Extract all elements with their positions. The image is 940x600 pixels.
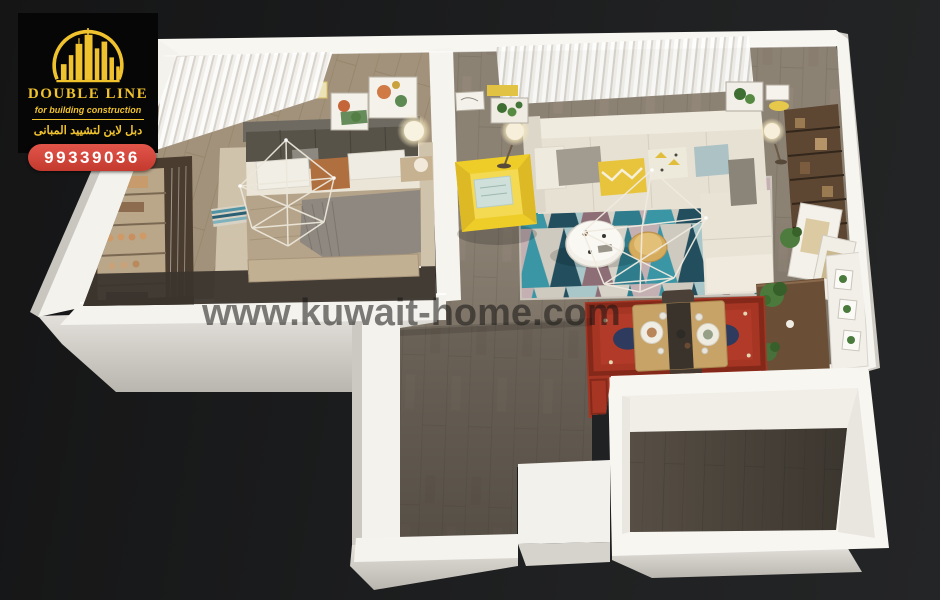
company-logo-card: DOUBLE LINE for building construction دب… — [18, 13, 158, 153]
logo-subtitle-arabic: دبل لاين لتشييد المبانى — [34, 123, 142, 137]
pillow-yellow — [598, 158, 647, 196]
logo-title: DOUBLE LINE — [28, 87, 148, 102]
console-table — [756, 278, 830, 378]
kitchen — [608, 363, 889, 556]
floor-plan-render: www.kuwait-home.com DOUBLE LINE for buil… — [0, 0, 940, 600]
entry-stub-wall — [518, 460, 610, 544]
pillow-print — [648, 147, 688, 180]
hall-bottom-wall — [354, 534, 518, 562]
armchair — [455, 154, 537, 245]
hall-left-wall — [362, 316, 400, 548]
armchair-pillow — [474, 176, 513, 208]
phone-number-badge: 99339036 — [28, 144, 156, 171]
pillow-bolster — [728, 158, 757, 206]
living-wall-art-right — [726, 82, 789, 111]
logo-divider — [32, 119, 144, 120]
pillow-gray — [556, 146, 603, 186]
building-logo-icon — [40, 19, 136, 89]
pillow-teal — [694, 144, 730, 177]
logo-subtitle: for building construction — [35, 105, 142, 115]
watermark-text: www.kuwait-home.com — [202, 292, 621, 335]
